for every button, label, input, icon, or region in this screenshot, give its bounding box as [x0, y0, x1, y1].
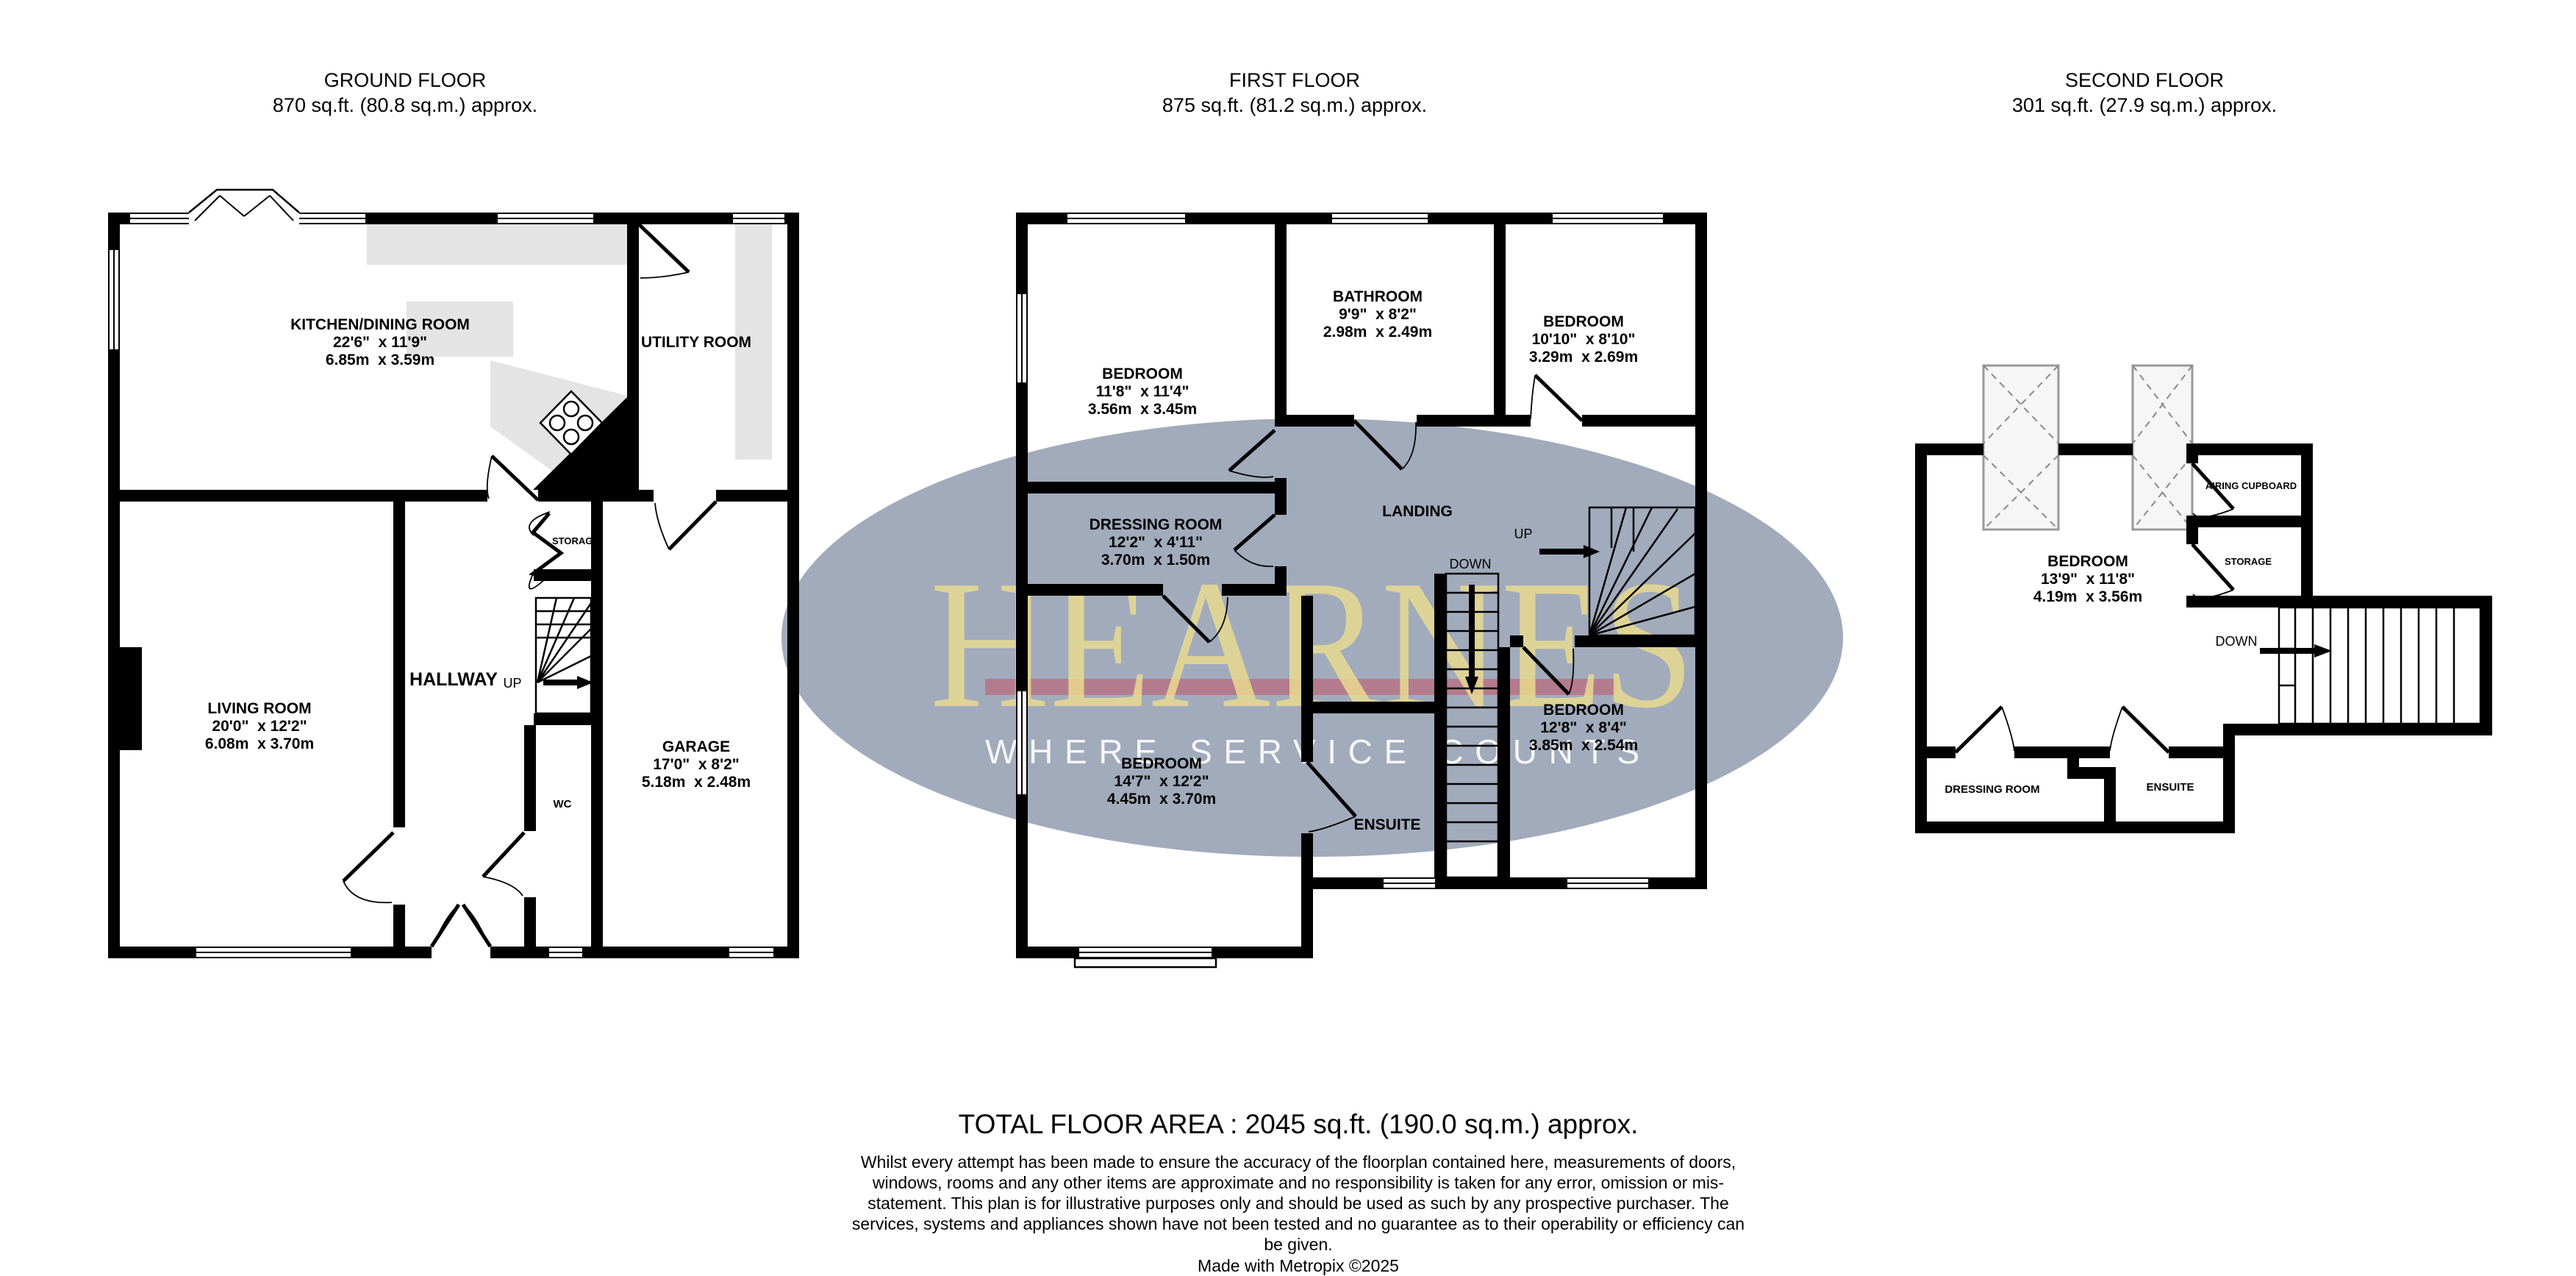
bedroom3-size-imperial: 14'7" x 12'2" — [1114, 773, 1209, 790]
storage-name: STORAGE — [552, 535, 599, 546]
bedroom3-name: BEDROOM — [1121, 755, 1202, 772]
dressing-size-metric: 3.70m x 1.50m — [1101, 552, 1210, 569]
first-doors — [1163, 375, 1582, 832]
utility-name: UTILITY ROOM — [641, 334, 751, 351]
bedroom4-size-imperial: 12'8" x 8'4" — [1540, 719, 1626, 736]
bathroom-name: BATHROOM — [1333, 288, 1423, 305]
up-label: UP — [1514, 527, 1532, 541]
storage-name: STORAGE — [2225, 556, 2272, 567]
bedroom1-name: BEDROOM — [1102, 366, 1183, 382]
dressing-name: DRESSING ROOM — [1090, 516, 1223, 533]
bedroom-name: BEDROOM — [2047, 553, 2128, 570]
ground-floor-plan: KITCHEN/DINING ROOM 22'6" x 11'9" 6.85m … — [108, 184, 799, 974]
first-floor-title: FIRST FLOOR — [1089, 68, 1500, 93]
second-floor-plan: BEDROOM 13'9" x 11'8" 4.19m x 3.56m AIRI… — [1904, 346, 2500, 853]
bedroom1-size-metric: 3.56m x 3.45m — [1088, 401, 1197, 418]
bedroom4-size-metric: 3.85m x 2.54m — [1529, 737, 1638, 754]
footer: TOTAL FLOOR AREA : 2045 sq.ft. (190.0 sq… — [842, 1109, 1754, 1276]
ensuite-name: ENSUITE — [1353, 816, 1420, 833]
metropix-credit: Made with Metropix ©2025 — [842, 1256, 1754, 1276]
bedroom2-name: BEDROOM — [1543, 313, 1624, 330]
living-size-imperial: 20'0" x 12'2" — [212, 718, 307, 735]
garage-name: GARAGE — [662, 738, 730, 755]
kitchen-size-metric: 6.85m x 3.59m — [326, 352, 434, 368]
dressing-size-imperial: 12'2" x 4'11" — [1109, 534, 1203, 551]
ground-floor-title: GROUND FLOOR — [199, 68, 611, 93]
first-stairs-down — [1446, 574, 1498, 877]
down-label: DOWN — [2216, 634, 2258, 649]
garage-size-metric: 5.18m x 2.48m — [642, 774, 751, 791]
bedroom2-size-imperial: 10'10" x 8'10" — [1532, 331, 1636, 348]
dressing-room-name: DRESSING ROOM — [1944, 783, 2039, 796]
ground-floor-header: GROUND FLOOR 870 sq.ft. (80.8 sq.m.) app… — [199, 68, 611, 118]
first-floor-plan: BEDROOM 11'8" x 11'4" 3.56m x 3.45m BATH… — [1016, 206, 1707, 974]
landing-name: LANDING — [1382, 503, 1453, 520]
bedroom-size-metric: 4.19m x 3.56m — [2033, 588, 2142, 605]
bedroom2-size-metric: 3.29m x 2.69m — [1529, 349, 1638, 366]
bedroom4-name: BEDROOM — [1543, 702, 1624, 719]
total-floor-area: TOTAL FLOOR AREA : 2045 sq.ft. (190.0 sq… — [842, 1109, 1754, 1140]
bathroom-size-metric: 2.98m x 2.49m — [1323, 324, 1432, 341]
first-stairs-up — [1539, 507, 1695, 635]
bedroom1-size-imperial: 11'8" x 11'4" — [1096, 383, 1189, 400]
bedroom3-size-metric: 4.45m x 3.70m — [1107, 791, 1216, 808]
living-size-metric: 6.08m x 3.70m — [205, 735, 314, 752]
ground-floor-area: 870 sq.ft. (80.8 sq.m.) approx. — [199, 93, 611, 118]
up-label: UP — [503, 676, 521, 691]
kitchen-size-imperial: 22'6" x 11'9" — [333, 334, 427, 351]
bedroom-size-imperial: 13'9" x 11'8" — [2041, 571, 2135, 588]
second-floor-title: SECOND FLOOR — [1939, 68, 2350, 93]
disclaimer-text: Whilst every attempt has been made to en… — [842, 1152, 1754, 1255]
second-stairs — [2260, 607, 2480, 724]
garage-size-imperial: 17'0" x 8'2" — [653, 756, 739, 773]
ground-stairs — [536, 598, 593, 713]
wc-name: WC — [554, 798, 572, 810]
second-floor-header: SECOND FLOOR 301 sq.ft. (27.9 sq.m.) app… — [1939, 68, 2350, 118]
first-floor-area: 875 sq.ft. (81.2 sq.m.) approx. — [1089, 93, 1500, 118]
kitchen-name: KITCHEN/DINING ROOM — [290, 316, 470, 333]
airing-cupboard-name: AIRING CUPBOARD — [2205, 480, 2297, 491]
down-label: DOWN — [1450, 557, 1492, 571]
ensuite-name: ENSUITE — [2146, 781, 2194, 794]
living-name: LIVING ROOM — [207, 700, 311, 717]
first-floor-header: FIRST FLOOR 875 sq.ft. (81.2 sq.m.) appr… — [1089, 68, 1500, 118]
bathroom-size-imperial: 9'9" x 8'2" — [1339, 306, 1417, 323]
second-floor-area: 301 sq.ft. (27.9 sq.m.) approx. — [1939, 93, 2350, 118]
hallway-name: HALLWAY — [409, 669, 498, 690]
